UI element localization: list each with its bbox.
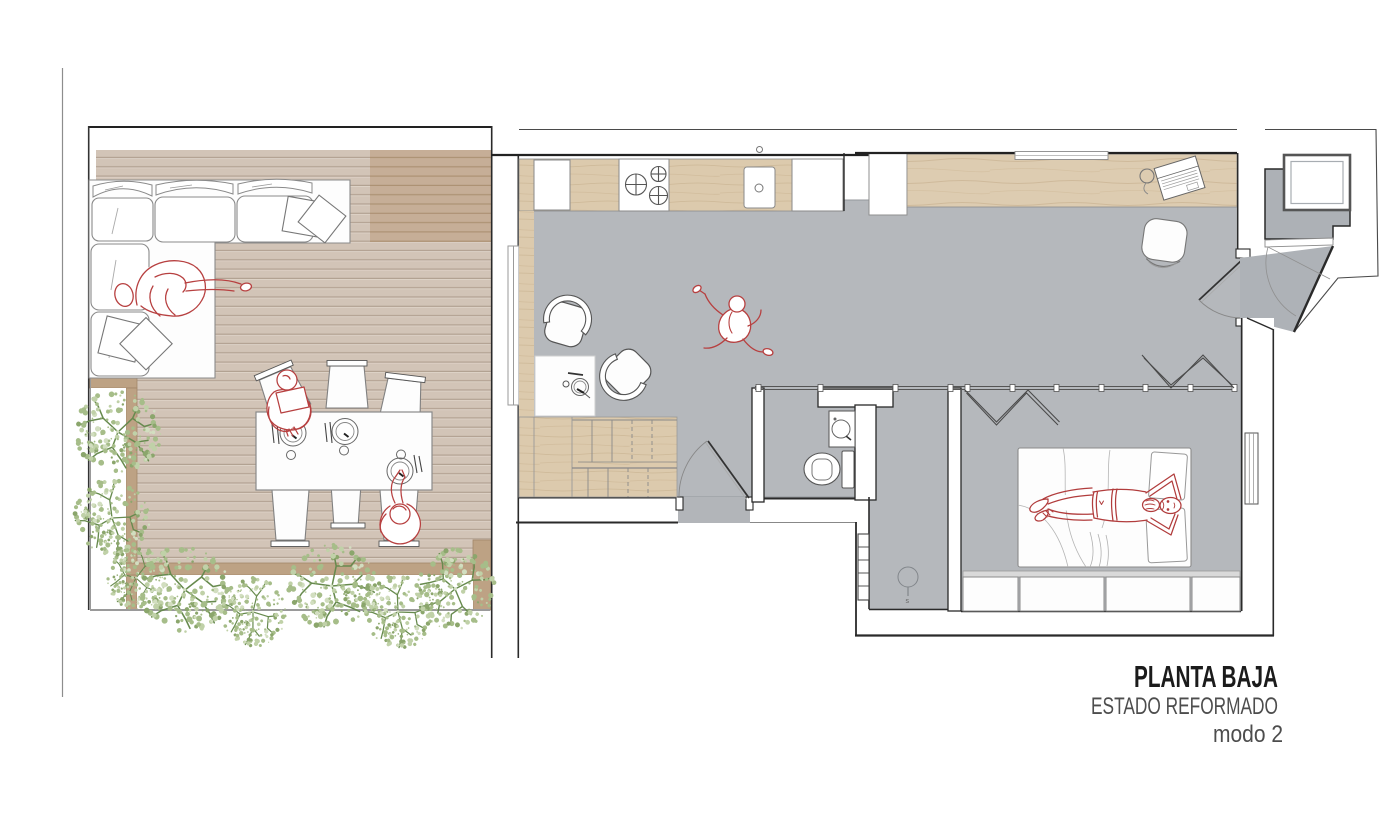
svg-text:ESTADO REFORMADO: ESTADO REFORMADO [1091, 693, 1278, 720]
svg-text:modo 2: modo 2 [1213, 721, 1283, 748]
svg-text:s: s [906, 598, 910, 605]
svg-text:PLANTA BAJA: PLANTA BAJA [1134, 659, 1278, 694]
